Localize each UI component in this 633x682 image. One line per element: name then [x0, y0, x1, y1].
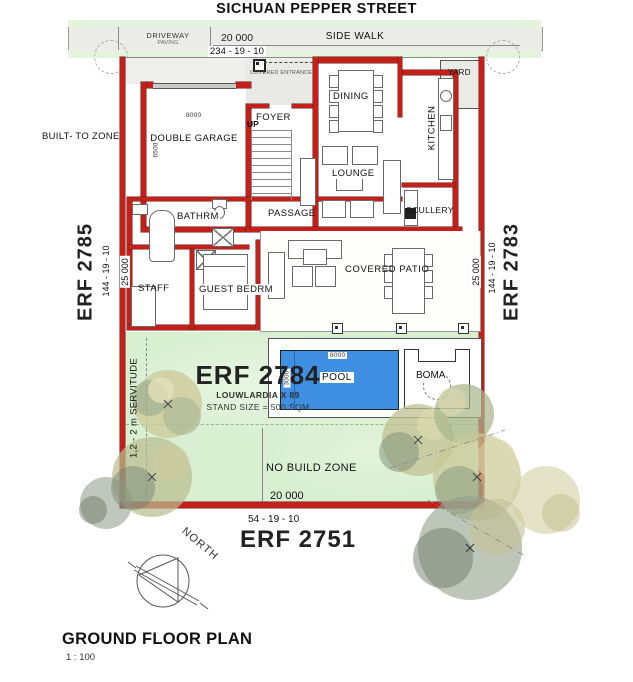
scullery-label: SCULLERY	[406, 205, 454, 215]
patio-column	[458, 323, 469, 334]
sidewalk-label: SIDE WALK	[290, 31, 420, 42]
wall	[292, 104, 313, 108]
erf-2784-label: ERF 2784	[178, 360, 338, 391]
erf-2783-label: ERF 2783	[501, 223, 524, 321]
shower	[212, 228, 234, 247]
patio-label: COVERED PATIO	[345, 264, 430, 275]
patio-chair	[384, 286, 393, 299]
wall	[402, 183, 455, 187]
wall	[236, 82, 251, 88]
garage-door	[153, 83, 236, 89]
guest-bed-pillow-line	[204, 266, 245, 267]
township-label: LOUWLARDIA X 89	[178, 390, 338, 400]
erf-2785-label: ERF 2785	[75, 223, 98, 321]
bathtub	[149, 210, 175, 262]
patio-chair	[315, 266, 336, 287]
dining-chair	[329, 105, 339, 118]
foyer-label: FOYER	[256, 112, 291, 123]
dining-chair	[329, 75, 339, 88]
wall	[313, 57, 402, 63]
entry-marker-dot	[256, 62, 259, 65]
yard-label: YARD	[448, 68, 471, 77]
pool-length-dim: 8000	[328, 352, 347, 359]
top-width-dim: 20 000	[214, 32, 260, 44]
no-build-zone-label: NO BUILD ZONE	[266, 462, 357, 474]
left-bearing: 144 - 19 - 10	[101, 245, 111, 296]
lounge-armchair	[352, 146, 378, 165]
plot-top-line	[125, 57, 479, 58]
dining-chair	[373, 120, 383, 133]
dim-line-vertical	[262, 428, 263, 502]
bathroom-label: BATHRM	[176, 211, 220, 222]
kitchen-appliance	[440, 115, 452, 131]
garage-height-dim: 6500	[153, 142, 160, 157]
plan-scale: 1 : 100	[66, 652, 95, 663]
servitude-line	[146, 338, 147, 502]
tree	[512, 466, 580, 534]
kitchen-label: KITCHEN	[427, 106, 438, 151]
plan-title: GROUND FLOOR PLAN	[62, 630, 252, 649]
patio-chair	[292, 266, 313, 287]
kitchen-appliance	[440, 90, 452, 102]
garage-width-dim: 8000	[186, 112, 201, 119]
right-bearing: 144 - 19 - 10	[487, 242, 497, 293]
dining-chair	[373, 105, 383, 118]
dining-chair	[373, 75, 383, 88]
patio-table	[392, 248, 425, 314]
entry-dashed-line	[264, 62, 313, 63]
driveway-label: DRIVEWAY	[128, 31, 208, 40]
lounge-armchair	[350, 200, 374, 218]
bottom-bearing: 54 - 19 - 10	[248, 514, 299, 525]
lounge-armchair	[322, 200, 346, 218]
lounge-armchair	[322, 146, 348, 165]
lounge-sofa	[383, 160, 401, 214]
passage-label: PASSAGE	[268, 208, 316, 219]
patio-column	[332, 323, 343, 334]
wall	[246, 104, 269, 108]
garage-label: DOUBLE GARAGE	[148, 133, 240, 144]
driveway-sub-label: PAVING	[128, 40, 208, 46]
left-dim: 25 000	[120, 256, 130, 288]
dining-chair	[329, 120, 339, 133]
patio-coffee-table	[303, 249, 327, 265]
north-label: NORTH	[179, 525, 220, 562]
floor-plan: SICHUAN PEPPER STREET DRIVEWAY PAVING SI…	[0, 0, 633, 682]
guest-bedroom-label: GUEST BEDRM	[198, 284, 274, 295]
north-compass	[128, 555, 208, 609]
boma-notch	[418, 349, 456, 362]
street-name: SICHUAN PEPPER STREET	[0, 1, 633, 17]
built-to-zone-label: BUILT- TO ZONE	[42, 131, 120, 142]
wall	[190, 249, 194, 329]
tree	[413, 496, 525, 600]
lounge-label: LOUNGE	[331, 168, 376, 179]
wall	[398, 57, 402, 117]
boma-label: BOMA	[415, 370, 446, 381]
dining-label: DINING	[332, 91, 370, 102]
stand-size-label: STAND SIZE = 500 SQM	[178, 402, 338, 412]
garden-dash-line	[126, 424, 478, 425]
patio-column	[396, 323, 407, 334]
boundary-bottom	[120, 502, 484, 508]
staff-label: STAFF	[138, 283, 169, 294]
top-bearing: 234 - 19 - 10	[208, 46, 266, 57]
dining-chair	[373, 90, 383, 103]
street-tree-circle	[486, 40, 520, 74]
basin	[132, 204, 148, 215]
servitude-label: 1,2 - 2 m SERVITUDE	[129, 358, 140, 458]
right-dim: 25 000	[471, 256, 481, 288]
staircase	[251, 130, 292, 200]
patio-chair	[424, 286, 433, 299]
guest-bed	[203, 254, 248, 310]
bottom-dim: 20 000	[270, 490, 304, 502]
lounge-rug	[300, 158, 316, 206]
covered-entrance-label: COVERED ENTRANCE	[250, 70, 312, 76]
erf-2751-label: ERF 2751	[240, 526, 356, 554]
